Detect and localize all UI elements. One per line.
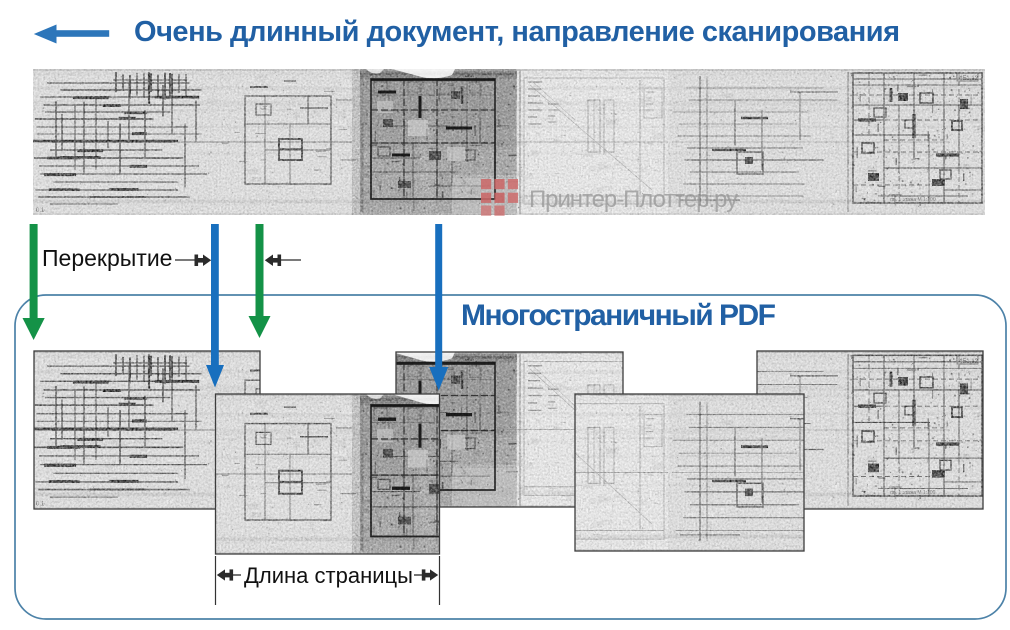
svg-text:Многостраничный PDF: Многостраничный PDF xyxy=(461,299,776,332)
svg-text:Перекрытие: Перекрытие xyxy=(42,245,172,271)
svg-text:Принтер-Плоттер.ру: Принтер-Плоттер.ру xyxy=(529,186,738,213)
svg-text:Длина страницы: Длина страницы xyxy=(244,563,413,588)
svg-text:Очень длинный документ, направ: Очень длинный документ, направление скан… xyxy=(134,16,900,48)
